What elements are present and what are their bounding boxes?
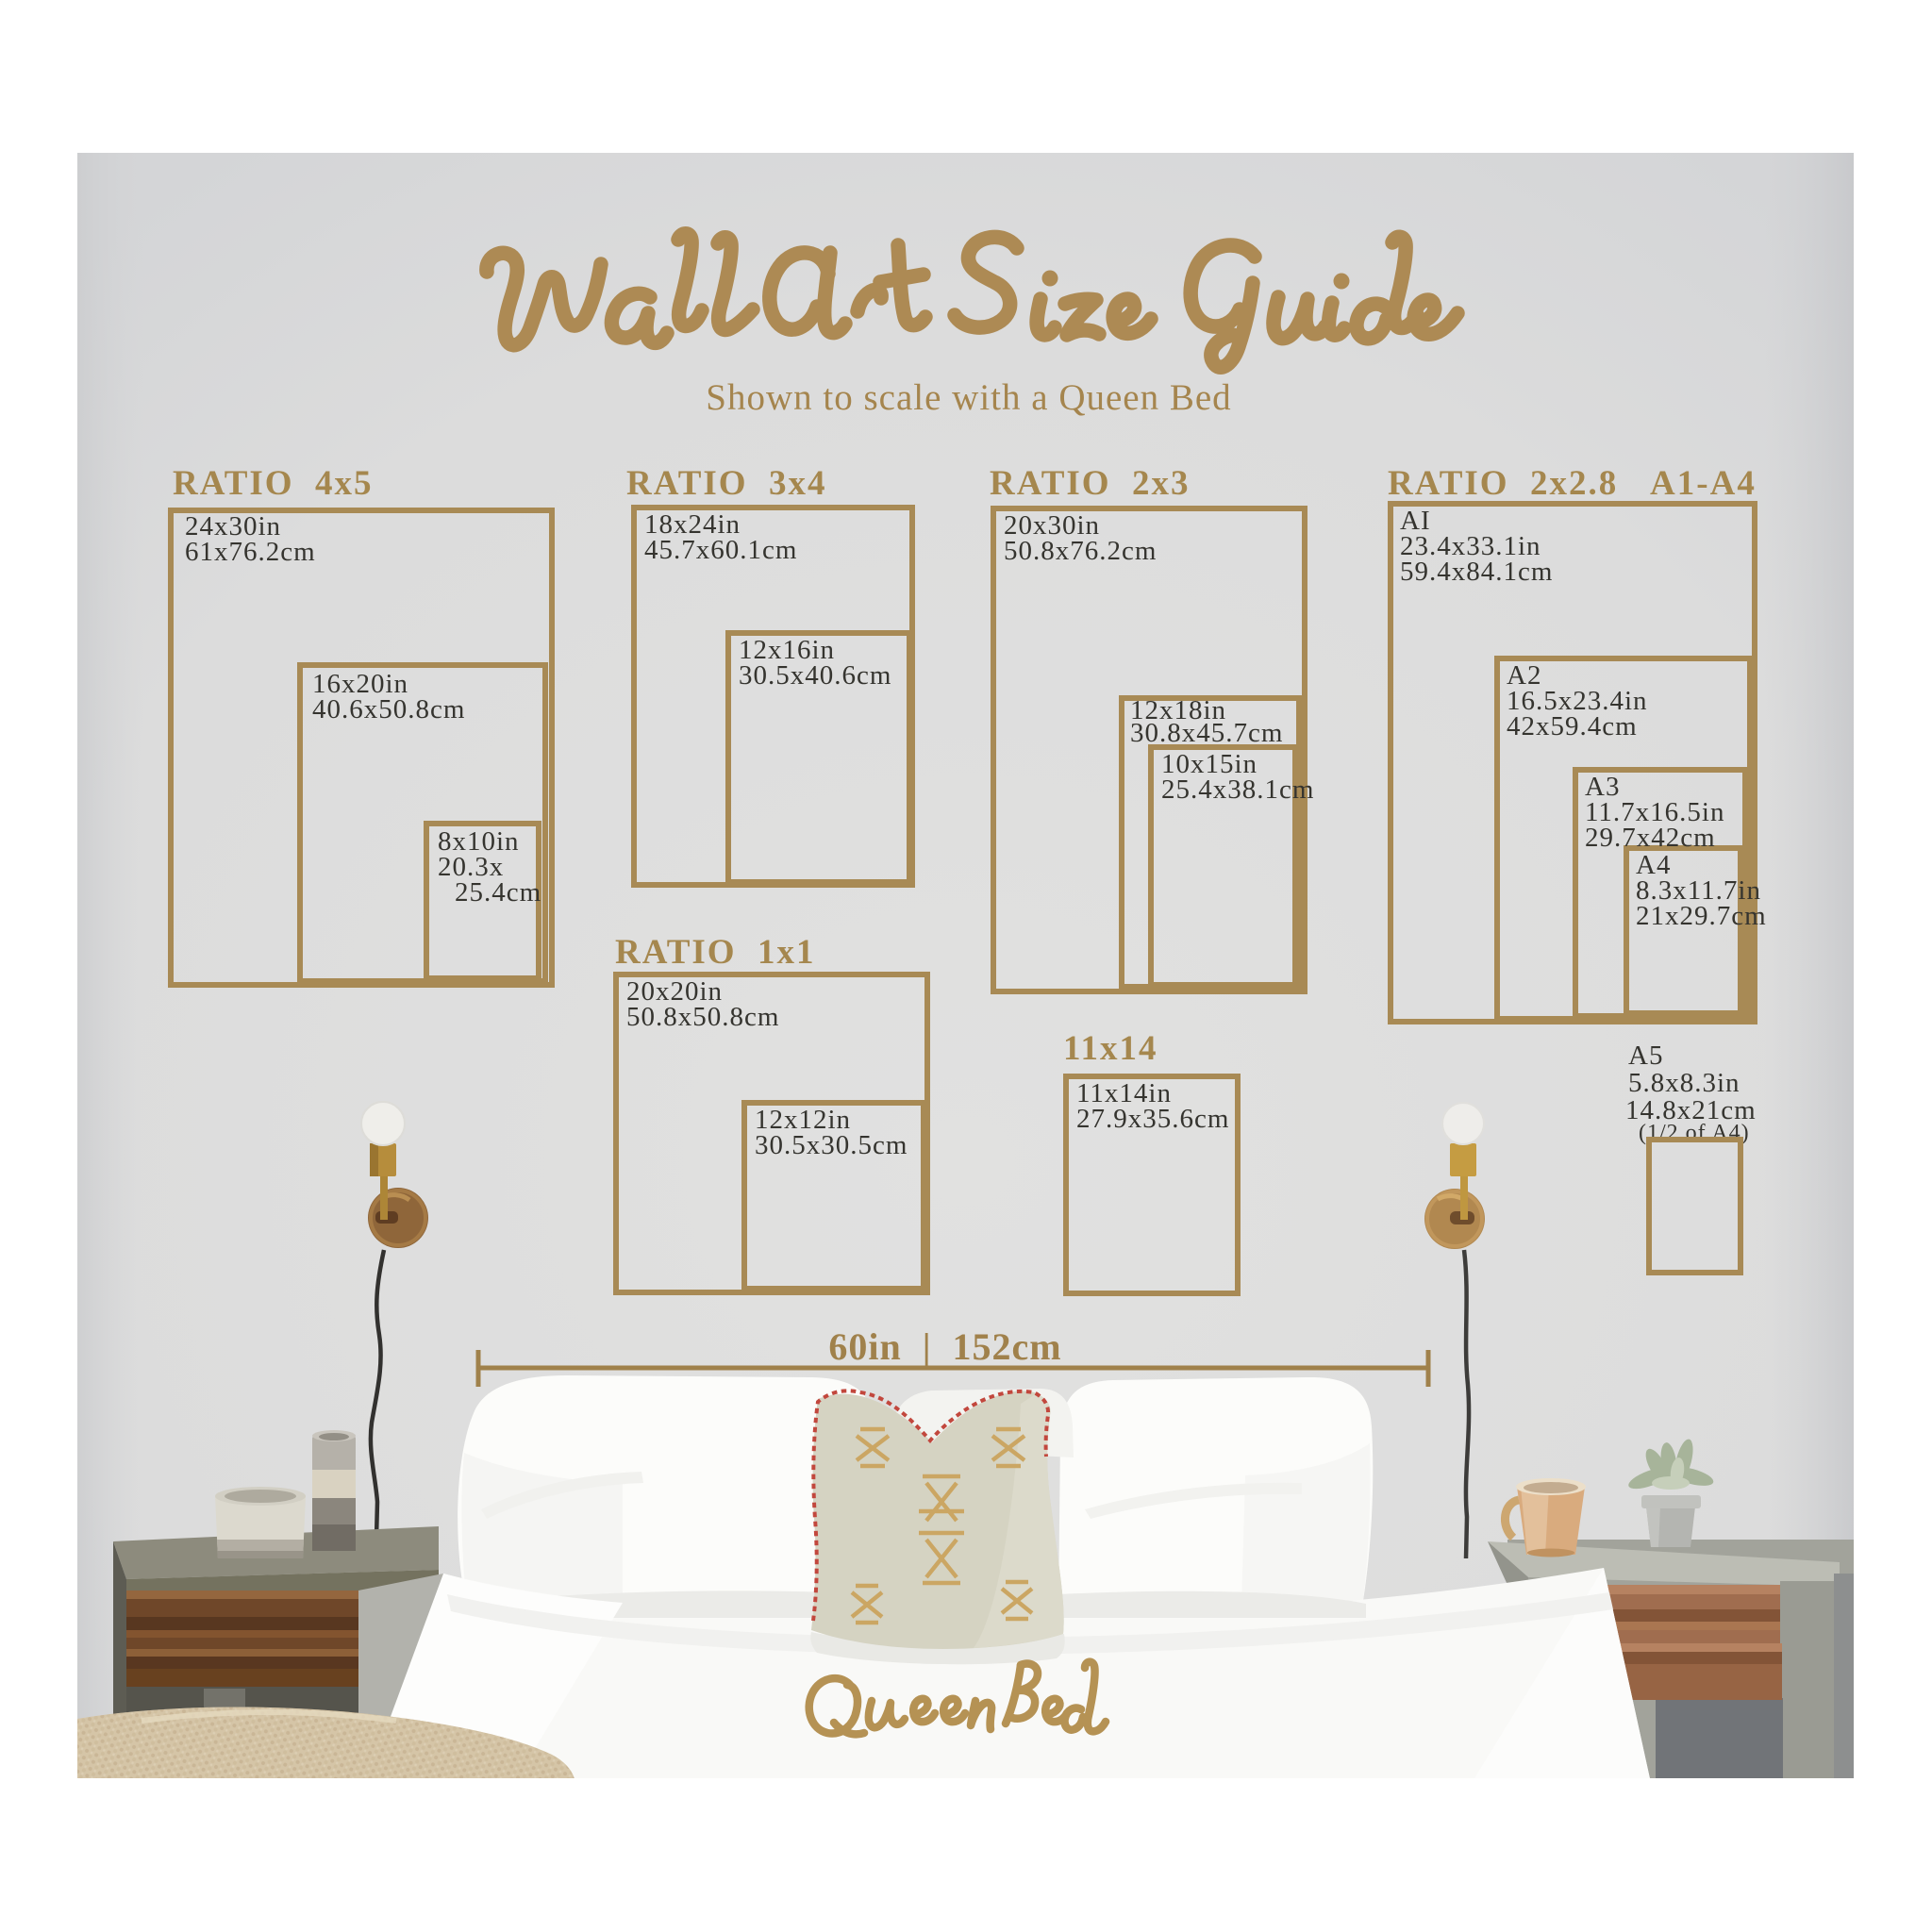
svg-text:59.4x84.1cm: 59.4x84.1cm — [1400, 557, 1553, 587]
svg-text:11x14: 11x14 — [1063, 1029, 1158, 1068]
svg-text:50.8x76.2cm: 50.8x76.2cm — [1004, 536, 1157, 566]
svg-text:30.8x45.7cm: 30.8x45.7cm — [1130, 718, 1283, 748]
svg-text:A5: A5 — [1628, 1041, 1663, 1071]
svg-text:5.8x8.3in: 5.8x8.3in — [1628, 1068, 1740, 1098]
svg-text:Shown to scale with a Queen Be: Shown to scale with a Queen Bed — [706, 377, 1231, 418]
svg-text:29.7x42cm: 29.7x42cm — [1585, 823, 1716, 853]
svg-text:RATIO 1x1: RATIO 1x1 — [615, 933, 816, 972]
svg-text:45.7x60.1cm: 45.7x60.1cm — [644, 535, 797, 565]
svg-text:40.6x50.8cm: 40.6x50.8cm — [312, 694, 465, 724]
svg-text:50.8x50.8cm: 50.8x50.8cm — [626, 1002, 779, 1032]
svg-text:60in | 152cm: 60in | 152cm — [828, 1325, 1061, 1368]
svg-text:27.9x35.6cm: 27.9x35.6cm — [1076, 1104, 1229, 1134]
svg-text:42x59.4cm: 42x59.4cm — [1507, 711, 1638, 741]
svg-text:30.5x30.5cm: 30.5x30.5cm — [755, 1130, 908, 1160]
svg-text:30.5x40.6cm: 30.5x40.6cm — [739, 660, 891, 691]
svg-text:RATIO 4x5: RATIO 4x5 — [173, 464, 374, 503]
svg-text:RATIO 2x2.8 A1-A4: RATIO 2x2.8 A1-A4 — [1388, 464, 1757, 503]
svg-text:RATIO 3x4: RATIO 3x4 — [626, 464, 827, 503]
svg-text:RATIO 2x3: RATIO 2x3 — [990, 464, 1191, 503]
svg-text:25.4cm: 25.4cm — [455, 877, 541, 908]
svg-text:61x76.2cm: 61x76.2cm — [185, 537, 316, 567]
svg-text:21x29.7cm: 21x29.7cm — [1636, 901, 1767, 931]
svg-text:25.4x38.1cm: 25.4x38.1cm — [1161, 774, 1314, 805]
